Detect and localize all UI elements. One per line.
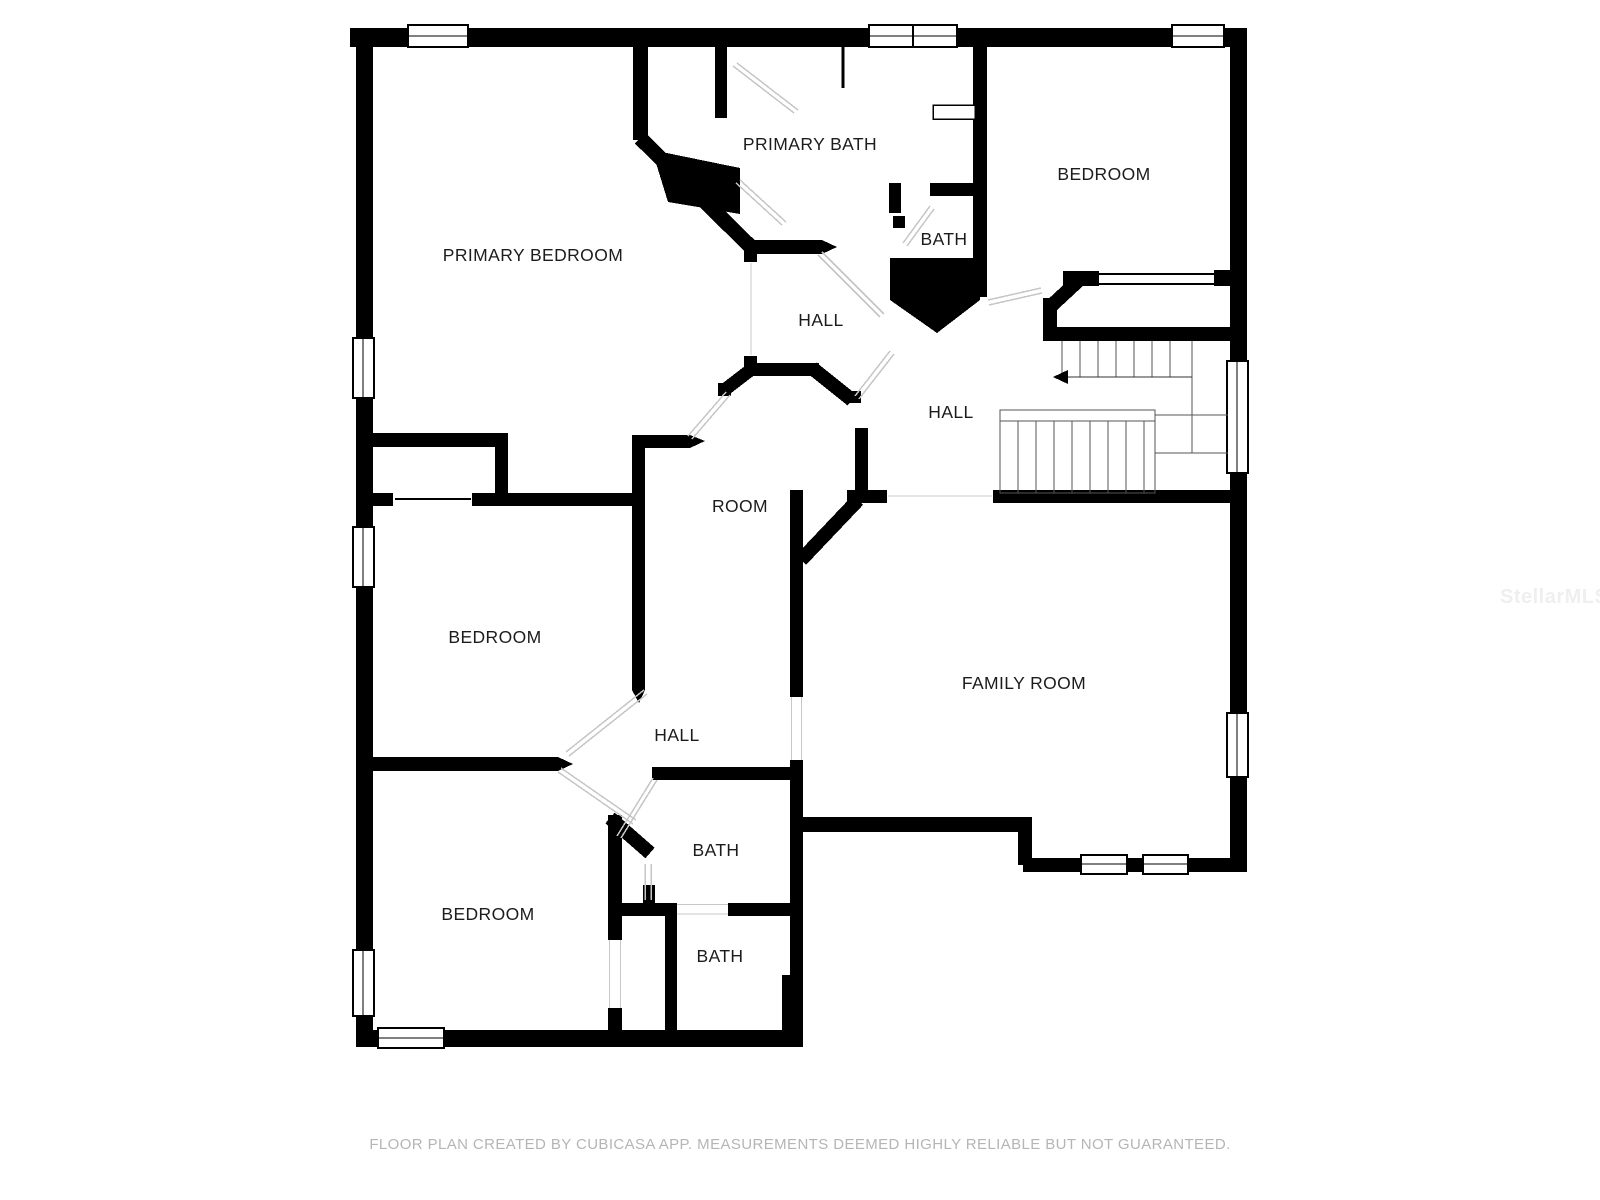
door-swing [688,392,730,439]
window [1081,855,1127,874]
wall-segment [889,183,901,213]
wall-segment [747,363,819,376]
door-frame-point [558,757,573,771]
door-swing [733,63,798,113]
staircase [1000,341,1228,493]
window [1227,713,1248,777]
wall-segment [633,45,648,140]
room-label-bath-middle: BATH [693,840,740,860]
room-label-primary-bedroom: PRIMARY BEDROOM [443,245,623,265]
wall-segment [1053,327,1230,341]
window [353,338,374,398]
wall-diagonal [801,500,858,560]
wall-segment [632,435,690,448]
room-label-hall-right: HALL [928,402,973,422]
stellar-mls-watermark: StellarMLS [1500,586,1600,609]
room-label-bath-top: BATH [921,229,968,249]
room-label-bedroom-middle: BEDROOM [448,627,541,647]
door-swing [558,768,636,824]
wall-segment [350,28,1247,47]
wall-segment [747,240,822,254]
door-frame-nub [893,216,905,228]
room-label-bedroom-top-right: BEDROOM [1057,164,1150,184]
railing-window [1097,274,1214,284]
counter [933,105,975,119]
room-label-family-room: FAMILY ROOM [962,673,1086,693]
stairs-direction-arrow-icon [1053,370,1068,384]
wall-corner-mass [652,150,740,214]
room-label-hall-lower: HALL [654,725,699,745]
wall-segment [608,1008,622,1033]
window [1227,361,1248,473]
wall-segment [930,183,987,196]
door-swing [818,252,884,317]
window [408,25,468,47]
wall-segment [368,433,508,447]
floor-plan-page: PRIMARY BEDROOM PRIMARY BATH BATH BEDROO… [0,0,1600,1200]
room-label-primary-bath: PRIMARY BATH [743,134,877,154]
door-frame-point [690,435,705,448]
door-swing [988,288,1042,305]
wall-segment [1018,817,1032,865]
wall-segment [993,490,1230,503]
wall-segment [632,435,645,690]
wall-segment [792,817,1032,832]
room-label-bedroom-bottom: BEDROOM [441,904,534,924]
wall-bay-pentagon [890,258,980,333]
door-frame-point [822,240,837,254]
window [1143,855,1188,874]
wall-segment [1214,270,1232,286]
wall-segment [652,767,792,780]
window [353,527,374,587]
room-label-hall-center: HALL [798,310,843,330]
floor-plan-drawing: PRIMARY BEDROOM PRIMARY BATH BATH BEDROO… [0,0,1600,1200]
door-swing [736,180,786,225]
wall-segment [782,975,803,1037]
door-frame-nub [744,356,757,368]
wall-segment [368,757,558,771]
room-label-bath-bottom: BATH [697,946,744,966]
window [869,25,913,47]
door-frame-nub [849,391,861,403]
window [913,25,957,47]
wall-segment [1023,858,1247,872]
wall-segment [715,45,727,118]
wall-segment [790,490,803,697]
wall-diagonal [1050,281,1078,307]
wall-segment [855,428,868,493]
window [353,950,374,1016]
door-swing [566,690,647,756]
wall-segment [665,913,677,1033]
door-gap [608,940,622,1008]
wall-diagonal [812,368,852,400]
door-frame-nub [744,250,757,262]
window [378,1028,444,1048]
footer-disclaimer: FLOOR PLAN CREATED BY CUBICASA APP. MEAS… [0,1136,1600,1153]
room-label-room: ROOM [712,496,768,516]
window [1172,25,1224,47]
